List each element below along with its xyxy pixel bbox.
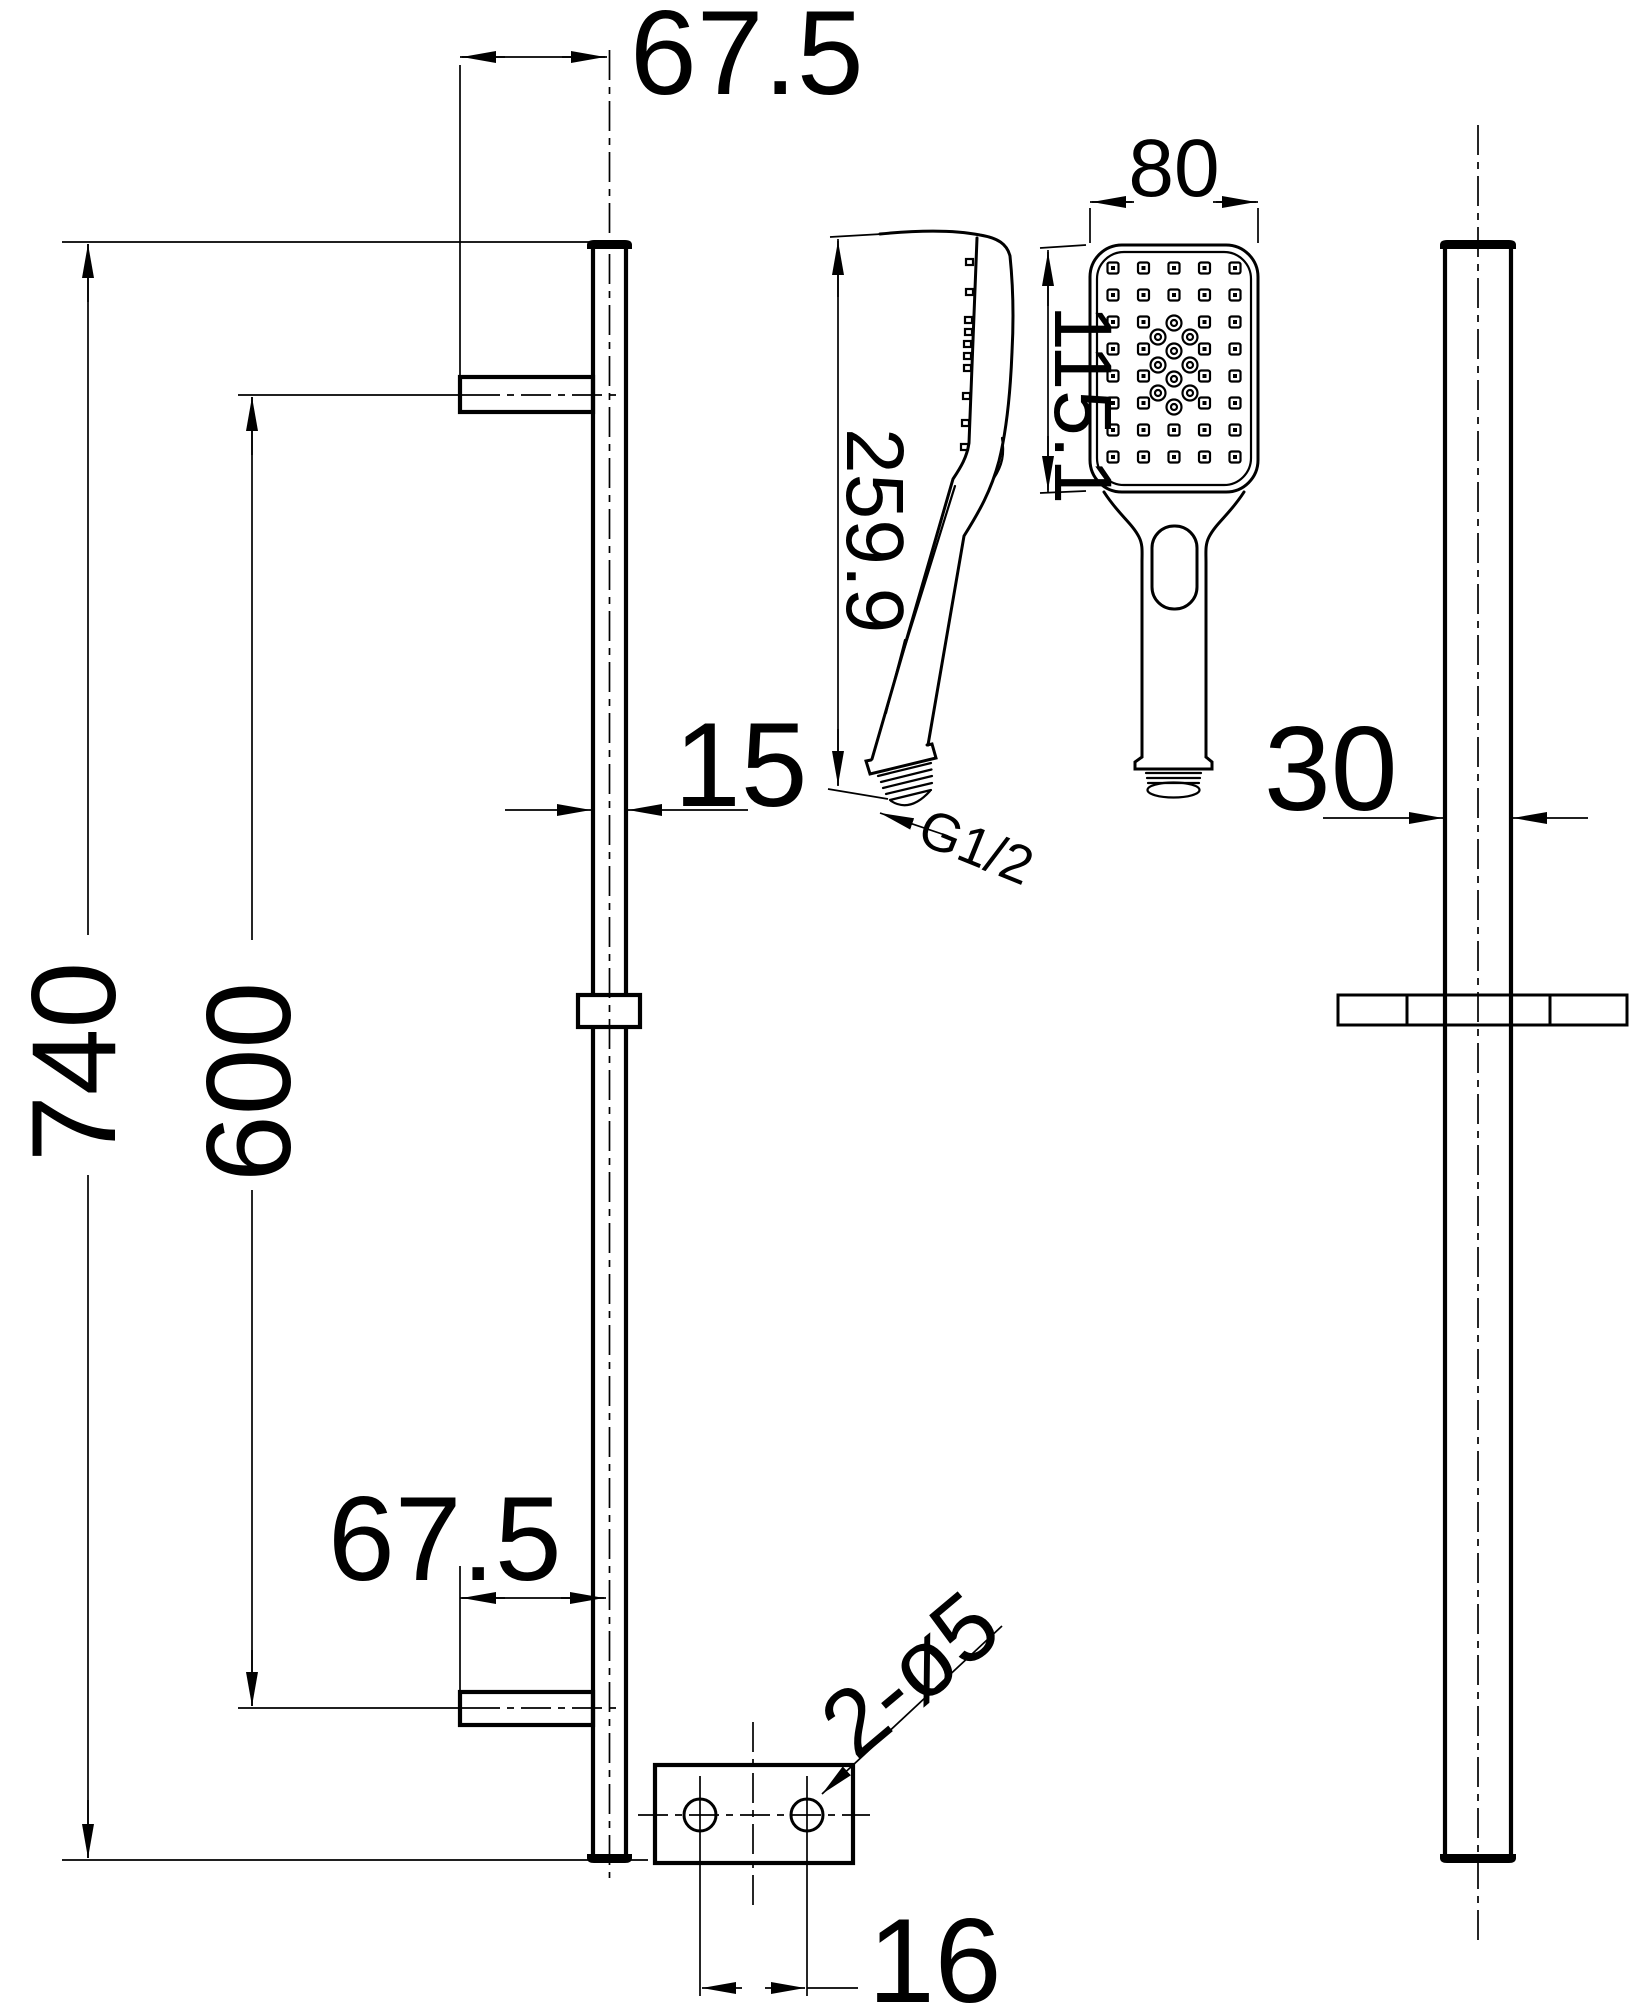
dim-head-width: 80 — [1090, 123, 1258, 243]
holes-note-label: 2-ø5 — [801, 1571, 1019, 1778]
dim-bracket-spacing-label: 600 — [182, 982, 316, 1182]
callout-holes: 2-ø5 — [801, 1571, 1019, 1794]
rail-side-top-cap — [1440, 240, 1516, 249]
dim-total-height-label: 740 — [7, 962, 141, 1162]
mode-button-slot — [1152, 526, 1197, 609]
drawing-page: 740 600 67.5 67.5 15 — [0, 0, 1634, 2011]
center-jet-cluster — [1151, 316, 1198, 415]
dim-bottom-offset-label: 67.5 — [328, 1472, 562, 1606]
dim-bottom-offset: 67.5 — [328, 1472, 606, 1690]
handle-right-edge — [1206, 492, 1244, 757]
thread-tip-front — [1148, 783, 1200, 798]
dim-handset-length-label: 259.9 — [829, 428, 920, 633]
dim-hole-spacing: 16 — [702, 1894, 1001, 2011]
handle-left-edge — [1104, 492, 1142, 757]
rail-side-bottom-cap — [1440, 1854, 1516, 1863]
thread-collar-front — [1135, 757, 1212, 769]
dim-rail-width-label: 15 — [674, 698, 807, 832]
handle-contour-line-2 — [886, 640, 905, 713]
dim-hole-spacing-label: 16 — [868, 1894, 1001, 2011]
dim-rail-width: 15 — [505, 698, 807, 832]
callout-thread-size: G1/2 — [880, 797, 1042, 896]
dim-bracket-spacing: 600 — [182, 397, 316, 1706]
dim-total-height: 740 — [7, 242, 648, 1860]
thread-size-label: G1/2 — [911, 797, 1042, 896]
dim-handset-length: 259.9 — [828, 234, 920, 799]
dim-rail-depth-label: 30 — [1264, 702, 1397, 836]
technical-drawing: 740 600 67.5 67.5 15 — [0, 0, 1634, 2011]
slider-holder-bar — [1338, 995, 1627, 1025]
thread-ridges-side — [878, 763, 932, 800]
dim-rail-depth: 30 — [1264, 702, 1588, 836]
rail-side-view — [1338, 125, 1627, 1940]
dim-head-width-label: 80 — [1128, 123, 1219, 214]
dim-top-offset: 67.5 — [460, 0, 864, 377]
dim-face-length: 115.1 — [1037, 245, 1128, 504]
dim-face-length-label: 115.1 — [1037, 305, 1128, 504]
dim-top-offset-label: 67.5 — [630, 0, 864, 120]
wall-plate-detail — [638, 1722, 870, 1996]
